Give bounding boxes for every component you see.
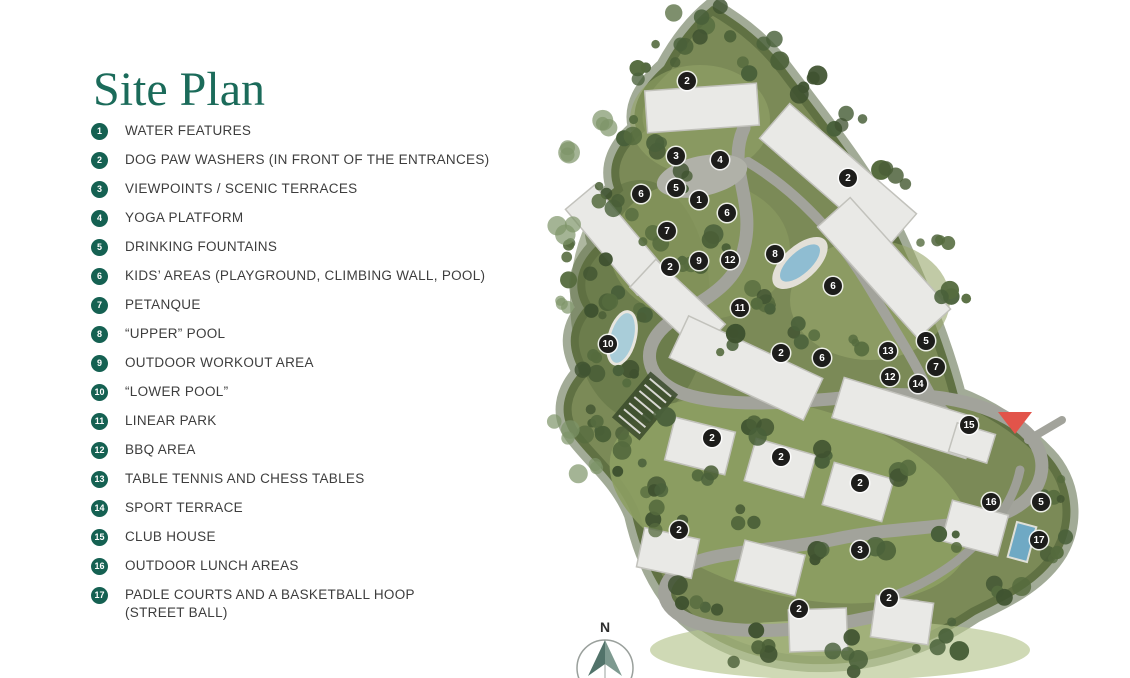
tree-icon xyxy=(689,595,703,609)
tree-icon xyxy=(586,404,596,414)
tree-icon xyxy=(916,238,925,247)
legend-badge: 2 xyxy=(91,152,108,169)
map-marker-6: 6 xyxy=(632,185,650,203)
tree-icon xyxy=(735,504,745,514)
tree-icon xyxy=(588,365,605,382)
map-marker-3: 3 xyxy=(851,541,869,559)
tree-icon xyxy=(629,115,638,124)
tree-icon xyxy=(673,38,687,52)
legend-badge: 12 xyxy=(91,442,108,459)
map-marker-6: 6 xyxy=(718,204,736,222)
tree-icon xyxy=(731,516,745,530)
legend-item-label: WATER FEATURES xyxy=(125,122,251,140)
legend: 1WATER FEATURES 2DOG PAW WASHERS (IN FRO… xyxy=(91,122,561,633)
tree-icon xyxy=(751,298,763,310)
villa xyxy=(870,595,933,645)
page-title: Site Plan xyxy=(93,62,265,117)
tree-icon xyxy=(726,324,746,344)
tree-icon xyxy=(749,427,767,445)
tree-icon xyxy=(611,194,624,207)
tree-icon xyxy=(747,516,760,529)
map-marker-4: 4 xyxy=(711,151,729,169)
palm-tree-icon xyxy=(590,461,603,474)
tree-icon xyxy=(621,360,639,378)
map-marker-5: 5 xyxy=(1032,493,1050,511)
tree-icon xyxy=(1057,475,1065,483)
tree-icon xyxy=(814,542,829,557)
legend-item: 9OUTDOOR WORKOUT AREA xyxy=(91,354,561,372)
tree-icon xyxy=(770,51,789,70)
tree-icon xyxy=(655,137,667,149)
tree-icon xyxy=(835,118,849,132)
tree-icon xyxy=(952,530,960,538)
tree-icon xyxy=(858,114,868,124)
tree-icon xyxy=(808,329,820,341)
tree-icon xyxy=(618,434,632,448)
legend-item-label: DOG PAW WASHERS (IN FRONT OF THE ENTRANC… xyxy=(125,151,489,169)
building xyxy=(645,83,760,133)
tree-icon xyxy=(561,252,572,263)
tree-icon xyxy=(1012,577,1031,596)
compass-north-label: N xyxy=(597,619,613,635)
legend-item-label: PADLE COURTS AND A BASKETBALL HOOP (STRE… xyxy=(125,586,415,622)
tree-icon xyxy=(843,629,859,645)
legend-item: 17PADLE COURTS AND A BASKETBALL HOOP (ST… xyxy=(91,586,561,622)
tree-icon xyxy=(560,271,577,288)
legend-item: 5DRINKING FOUNTAINS xyxy=(91,238,561,256)
tree-icon xyxy=(591,352,602,363)
tree-icon xyxy=(694,9,709,24)
tree-icon xyxy=(637,312,647,322)
map-marker-5: 5 xyxy=(917,332,935,350)
map-marker-2: 2 xyxy=(851,474,869,492)
tree-icon xyxy=(595,182,604,191)
map-marker-15: 15 xyxy=(960,416,978,434)
tree-icon xyxy=(961,294,971,304)
map-marker-1: 1 xyxy=(690,191,708,209)
legend-item-label: KIDS’ AREAS (PLAYGROUND, CLIMBING WALL, … xyxy=(125,267,485,285)
tree-icon xyxy=(654,483,668,497)
tree-icon xyxy=(665,4,682,21)
map-marker-8: 8 xyxy=(766,245,784,263)
tree-icon xyxy=(950,641,970,661)
legend-badge: 4 xyxy=(91,210,108,227)
tree-icon xyxy=(702,231,720,249)
map-marker-2: 2 xyxy=(678,72,696,90)
legend-badge: 6 xyxy=(91,268,108,285)
tree-icon xyxy=(673,163,690,180)
tree-icon xyxy=(675,596,689,610)
tree-icon xyxy=(622,378,631,387)
legend-item: 2DOG PAW WASHERS (IN FRONT OF THE ENTRAN… xyxy=(91,151,561,169)
map-marker-10: 10 xyxy=(599,335,617,353)
tree-icon xyxy=(866,537,886,557)
tree-icon xyxy=(651,40,660,49)
tree-icon xyxy=(790,85,809,104)
tree-icon xyxy=(931,526,947,542)
map-marker-3: 3 xyxy=(667,147,685,165)
legend-badge: 1 xyxy=(91,123,108,140)
map-marker-9: 9 xyxy=(690,252,708,270)
legend-badge: 7 xyxy=(91,297,108,314)
tree-icon xyxy=(711,604,723,616)
map-marker-16: 16 xyxy=(982,493,1000,511)
tree-icon xyxy=(638,458,647,467)
tree-icon xyxy=(1058,529,1073,544)
legend-badge: 16 xyxy=(91,558,108,575)
legend-badge: 17 xyxy=(91,587,108,604)
tree-icon xyxy=(657,407,676,426)
legend-item-label: SPORT TERRACE xyxy=(125,499,243,517)
legend-item: 12BBQ AREA xyxy=(91,441,561,459)
legend-item: 4YOGA PLATFORM xyxy=(91,209,561,227)
legend-item-label: OUTDOOR WORKOUT AREA xyxy=(125,354,314,372)
legend-item: 10“LOWER POOL” xyxy=(91,383,561,401)
legend-item-label: OUTDOOR LUNCH AREAS xyxy=(125,557,299,575)
map-marker-13: 13 xyxy=(879,342,897,360)
palm-tree-icon xyxy=(565,216,581,232)
tree-icon xyxy=(649,500,665,516)
legend-item-label: CLUB HOUSE xyxy=(125,528,216,546)
tree-icon xyxy=(642,412,653,423)
map-marker-7: 7 xyxy=(658,222,676,240)
legend-item: 7PETANQUE xyxy=(91,296,561,314)
legend-item: 14SPORT TERRACE xyxy=(91,499,561,517)
legend-badge: 9 xyxy=(91,355,108,372)
tree-icon xyxy=(613,365,624,376)
tree-icon xyxy=(741,65,757,81)
map-marker-2: 2 xyxy=(839,169,857,187)
tree-icon xyxy=(583,267,597,281)
legend-item: 8“UPPER” POOL xyxy=(91,325,561,343)
tree-icon xyxy=(824,643,841,660)
map-marker-2: 2 xyxy=(880,589,898,607)
tree-icon xyxy=(764,303,775,314)
tree-icon xyxy=(912,644,921,653)
tree-icon xyxy=(716,348,724,356)
tree-icon xyxy=(701,473,714,486)
tree-icon xyxy=(849,650,868,669)
tree-icon xyxy=(996,589,1013,606)
tree-icon xyxy=(748,622,764,638)
tree-icon xyxy=(791,316,806,331)
legend-item-label: PETANQUE xyxy=(125,296,201,314)
legend-badge: 8 xyxy=(91,326,108,343)
map-marker-6: 6 xyxy=(813,349,831,367)
map-marker-7: 7 xyxy=(927,358,945,376)
compass-icon xyxy=(577,640,633,678)
map-marker-17: 17 xyxy=(1030,531,1048,549)
legend-badge: 3 xyxy=(91,181,108,198)
tree-icon xyxy=(934,290,949,305)
tree-icon xyxy=(1057,495,1065,503)
legend-item-label: VIEWPOINTS / SCENIC TERRACES xyxy=(125,180,357,198)
palm-tree-icon xyxy=(560,148,574,162)
legend-item: 13TABLE TENNIS AND CHESS TABLES xyxy=(91,470,561,488)
legend-badge: 13 xyxy=(91,471,108,488)
tree-icon xyxy=(724,30,736,42)
tree-icon xyxy=(848,334,858,344)
legend-item-label: LINEAR PARK xyxy=(125,412,217,430)
map-marker-2: 2 xyxy=(661,258,679,276)
map-marker-14: 14 xyxy=(909,375,927,393)
tree-icon xyxy=(947,617,956,626)
legend-item-label: BBQ AREA xyxy=(125,441,196,459)
legend-item-label: YOGA PLATFORM xyxy=(125,209,243,227)
tree-icon xyxy=(668,575,688,595)
legend-badge: 10 xyxy=(91,384,108,401)
palm-tree-icon xyxy=(592,110,613,131)
palm-tree-icon xyxy=(561,431,574,444)
map-marker-12: 12 xyxy=(721,251,739,269)
legend-badge: 15 xyxy=(91,529,108,546)
legend-item: 11LINEAR PARK xyxy=(91,412,561,430)
map-marker-11: 11 xyxy=(731,299,749,317)
tree-icon xyxy=(900,460,916,476)
tree-icon xyxy=(624,127,643,146)
tree-icon xyxy=(598,311,606,319)
tree-icon xyxy=(751,640,765,654)
legend-item-label: “LOWER POOL” xyxy=(125,383,228,401)
tree-icon xyxy=(625,208,639,222)
tree-icon xyxy=(575,362,591,378)
tree-icon xyxy=(951,542,962,553)
legend-item: 1WATER FEATURES xyxy=(91,122,561,140)
tree-icon xyxy=(670,57,680,67)
legend-item: 16OUTDOOR LUNCH AREAS xyxy=(91,557,561,575)
legend-item: 6KIDS’ AREAS (PLAYGROUND, CLIMBING WALL,… xyxy=(91,267,561,285)
legend-item-label: DRINKING FOUNTAINS xyxy=(125,238,277,256)
map-marker-12: 12 xyxy=(881,368,899,386)
tree-icon xyxy=(599,252,613,266)
tree-icon xyxy=(692,29,707,44)
map-marker-2: 2 xyxy=(772,448,790,466)
tree-icon xyxy=(638,237,647,246)
tree-icon xyxy=(756,37,770,51)
palm-tree-icon xyxy=(569,464,588,483)
legend-item: 3VIEWPOINTS / SCENIC TERRACES xyxy=(91,180,561,198)
legend-item: 15CLUB HOUSE xyxy=(91,528,561,546)
tree-icon xyxy=(930,639,946,655)
map-marker-6: 6 xyxy=(824,277,842,295)
map-marker-2: 2 xyxy=(670,521,688,539)
map-marker-2: 2 xyxy=(772,344,790,362)
map-marker-2: 2 xyxy=(703,429,721,447)
map-marker-5: 5 xyxy=(667,179,685,197)
legend-badge: 14 xyxy=(91,500,108,517)
tree-icon xyxy=(595,426,611,442)
legend-item-label: TABLE TENNIS AND CHESS TABLES xyxy=(125,470,365,488)
legend-item-label: “UPPER” POOL xyxy=(125,325,225,343)
legend-badge: 5 xyxy=(91,239,108,256)
tree-icon xyxy=(592,194,607,209)
tree-icon xyxy=(813,440,831,458)
tree-icon xyxy=(632,72,645,85)
legend-badge: 11 xyxy=(91,413,108,430)
tree-icon xyxy=(935,235,945,245)
tree-icon xyxy=(794,334,809,349)
tree-icon xyxy=(807,72,820,85)
tree-icon xyxy=(888,168,904,184)
tree-icon xyxy=(1051,546,1064,559)
tree-icon xyxy=(727,656,739,668)
tree-icon xyxy=(584,303,598,317)
map-marker-2: 2 xyxy=(790,600,808,618)
tree-icon xyxy=(612,466,623,477)
tree-icon xyxy=(602,293,618,309)
tree-icon xyxy=(648,523,662,537)
